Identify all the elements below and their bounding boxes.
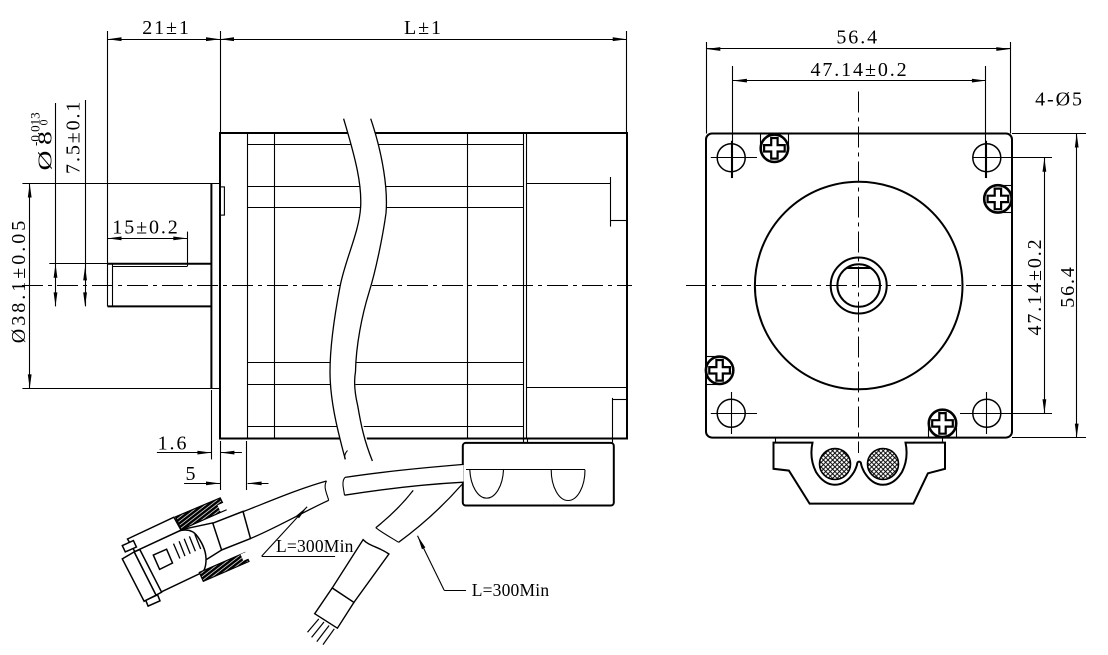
svg-text:21±1: 21±1 bbox=[142, 17, 191, 39]
svg-text:5: 5 bbox=[186, 463, 198, 485]
svg-text:L=300Min: L=300Min bbox=[276, 536, 354, 556]
svg-text:47.14±0.2: 47.14±0.2 bbox=[810, 59, 908, 81]
svg-text:56.4: 56.4 bbox=[1057, 265, 1079, 308]
svg-text:4-Ø5: 4-Ø5 bbox=[1035, 89, 1084, 111]
svg-text:15±0.2: 15±0.2 bbox=[112, 216, 179, 238]
svg-text:-0.013: -0.013 bbox=[28, 112, 43, 146]
svg-text:1.6: 1.6 bbox=[158, 433, 189, 455]
svg-text:L=300Min: L=300Min bbox=[472, 580, 550, 600]
svg-text:L±1: L±1 bbox=[404, 17, 443, 39]
svg-text:Ø38.1±0.05: Ø38.1±0.05 bbox=[8, 218, 30, 343]
svg-text:47.14±0.2: 47.14±0.2 bbox=[1024, 237, 1046, 335]
svg-text:56.4: 56.4 bbox=[836, 27, 879, 49]
svg-text:7.5±0.1: 7.5±0.1 bbox=[63, 100, 85, 174]
